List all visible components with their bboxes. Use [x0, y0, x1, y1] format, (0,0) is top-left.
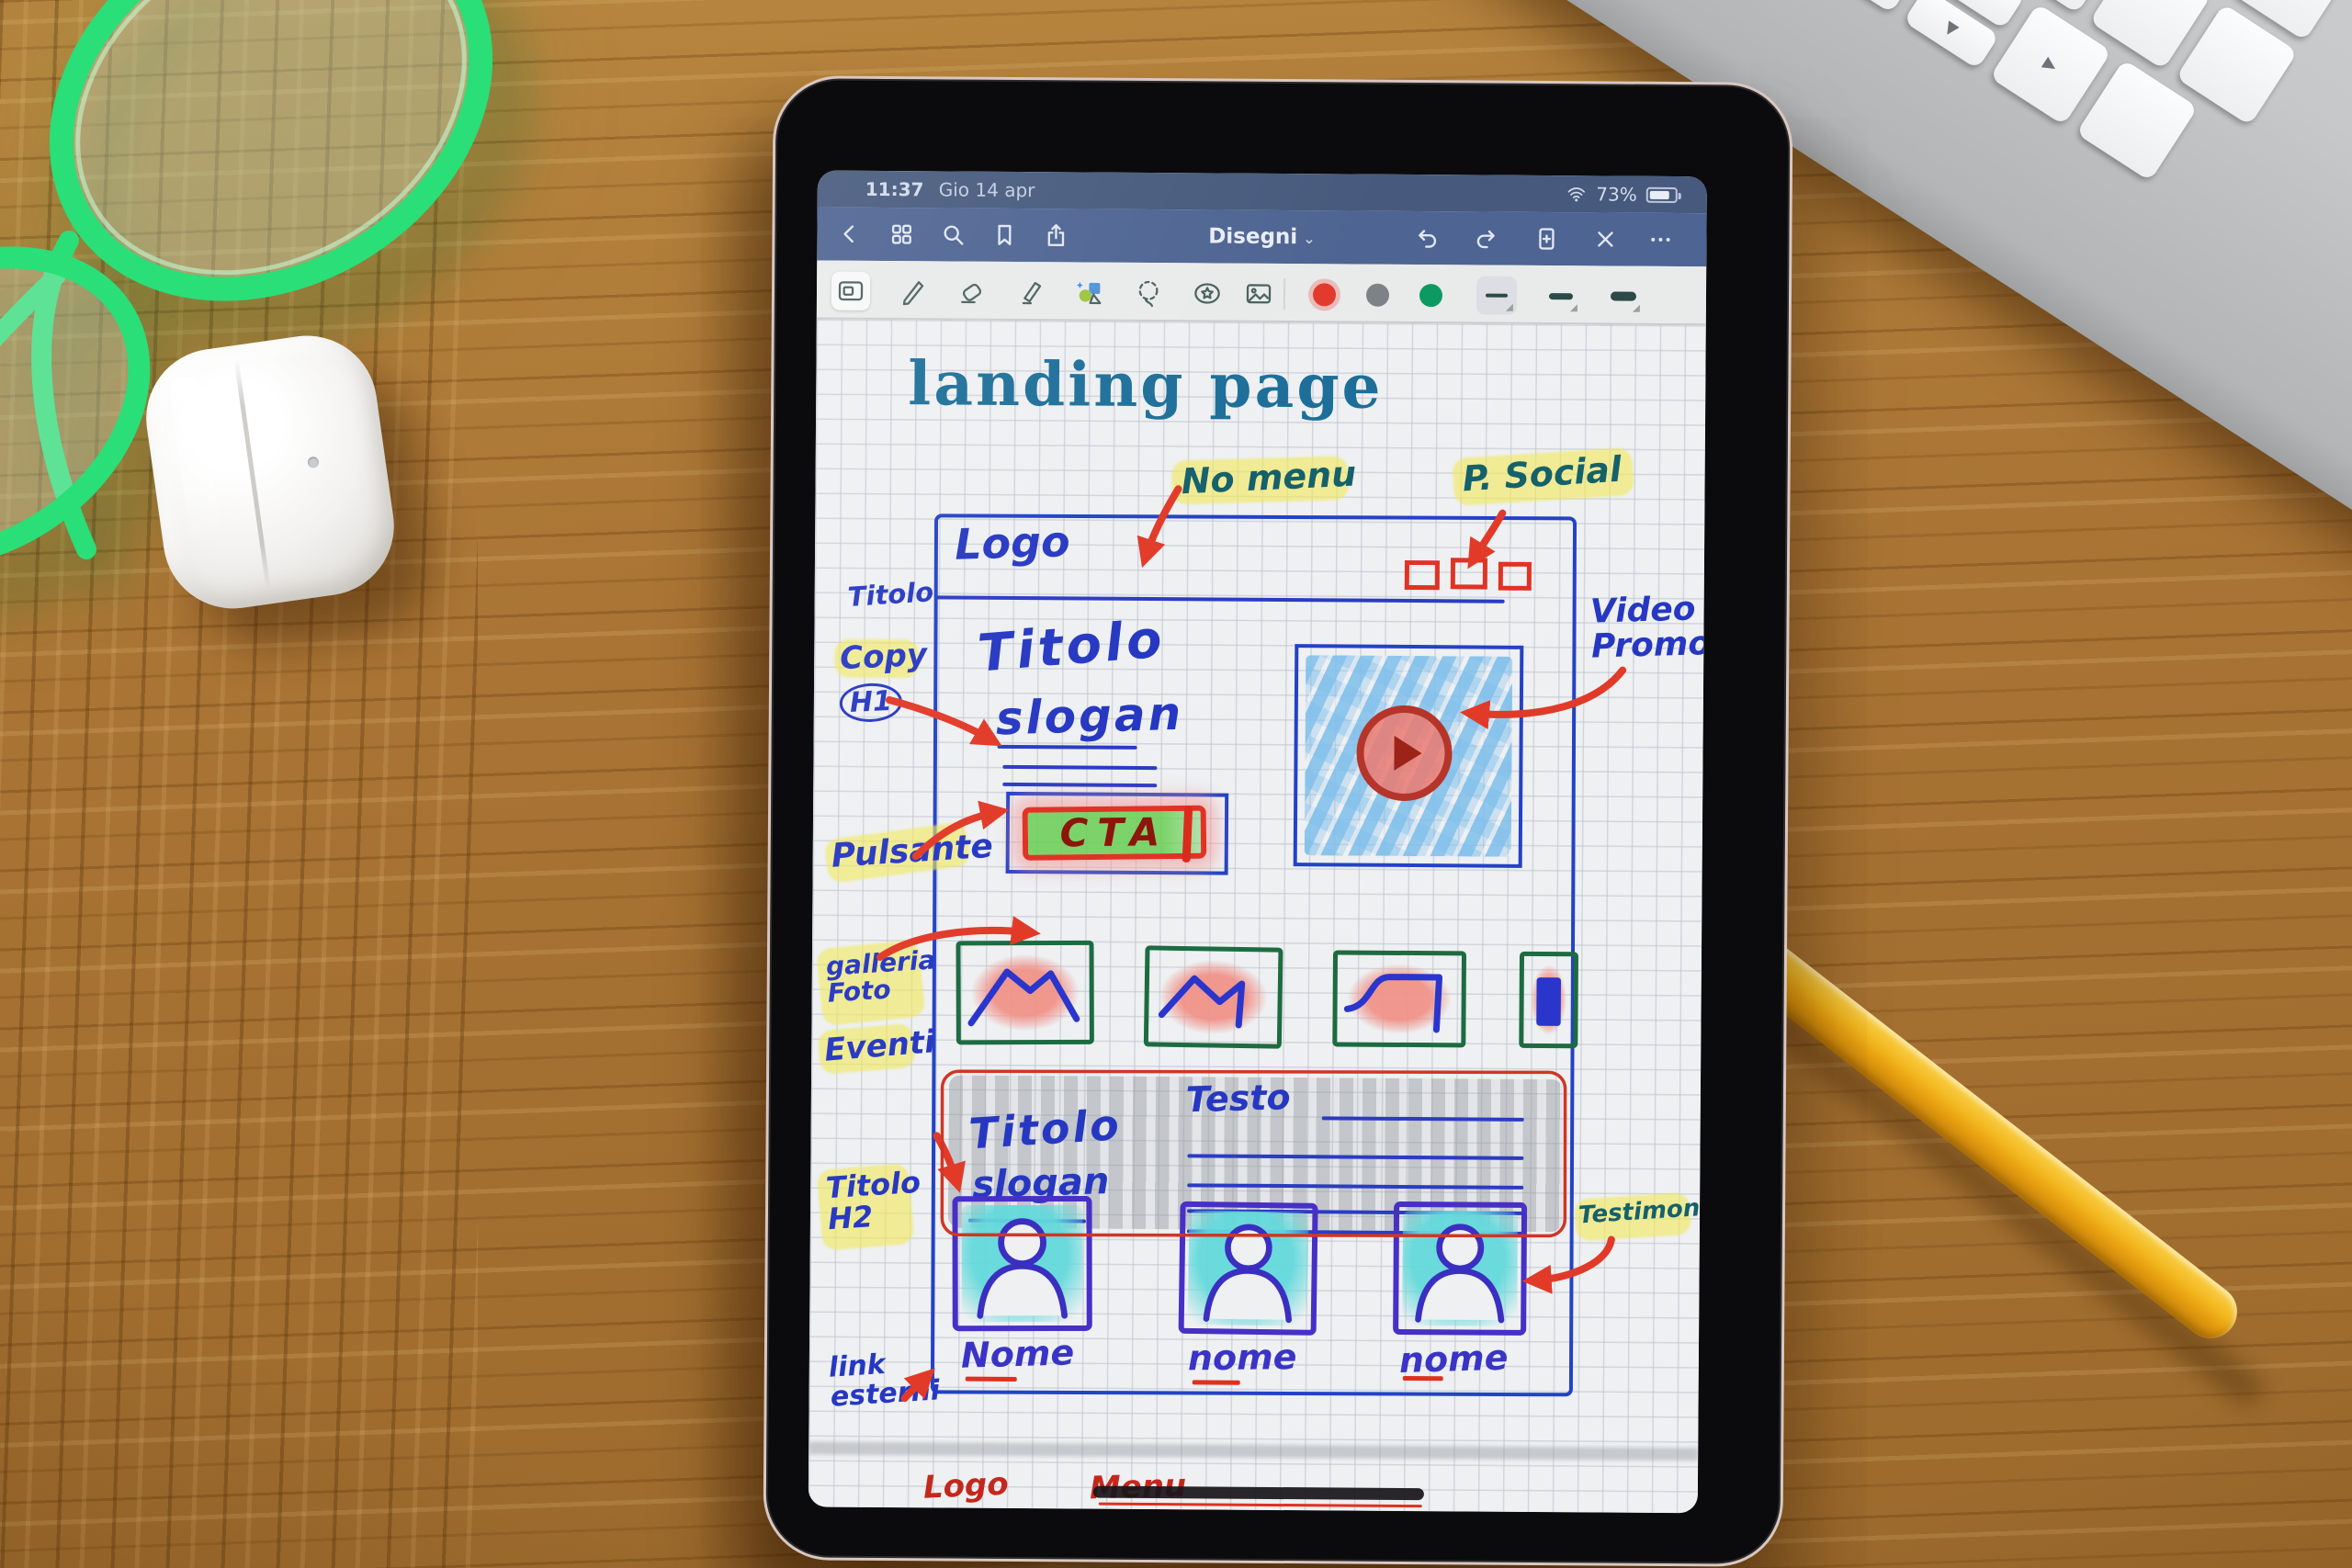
person-silhouette-icon [958, 1201, 1087, 1325]
gallery-box-1 [955, 941, 1093, 1045]
stroke-width-thin-selected[interactable] [1476, 276, 1517, 314]
social-square-3 [1498, 562, 1532, 591]
home-indicator[interactable] [1093, 1486, 1424, 1501]
zoom-window-tool[interactable] [831, 272, 870, 310]
drawing-toolbar [817, 260, 1706, 325]
image-tool[interactable] [1239, 275, 1278, 313]
battery-icon [1646, 186, 1678, 202]
add-page-icon[interactable] [1532, 224, 1561, 254]
document-title-text: Disegni [1208, 224, 1297, 249]
color-swatch-red-selected[interactable] [1313, 283, 1336, 306]
nome-underline-1 [966, 1377, 1017, 1382]
annotation-eventi: Eventi [823, 1026, 936, 1067]
gallery-box-4 [1519, 952, 1578, 1048]
annotation-titolo-side: Titolo [847, 578, 934, 611]
play-button-sketch [1356, 705, 1453, 802]
navigation-bar: Disegni⌄ [817, 207, 1706, 266]
mid-title: Titolo [967, 1102, 1123, 1156]
testimonial-card-1 [953, 1196, 1092, 1331]
annotation-titolo-h2-line1: Titolo [825, 1168, 922, 1204]
wireframe-logo: Logo [954, 519, 1070, 567]
mountain-sketch-icon [1148, 950, 1279, 1043]
eraser-tool[interactable] [953, 273, 991, 311]
nome-label-1: Nome [960, 1335, 1074, 1374]
airpods-highlight [168, 375, 222, 543]
arrow-down-glyph: ▼ [1940, 17, 1962, 39]
cta-label: CTA [1059, 812, 1169, 853]
tablet-screen: 11:37 Gio 14 apr 73% [808, 170, 1707, 1513]
annotation-link-line2: esterni [830, 1376, 941, 1412]
hero-subtitle: slogan [995, 690, 1184, 743]
highlighter-tool[interactable] [1012, 273, 1050, 311]
gallery-box-2 [1144, 945, 1283, 1048]
annotation-h1-circled: H1 [839, 682, 903, 723]
wifi-icon [1565, 185, 1587, 203]
annotation-copy: Copy [839, 639, 927, 676]
flag-sketch-icon [1337, 954, 1462, 1043]
footer-menu-underline [1099, 1503, 1422, 1507]
color-swatch-gray[interactable] [1366, 284, 1389, 307]
pen-tool[interactable] [894, 272, 933, 310]
person-silhouette-icon [1184, 1207, 1313, 1330]
lasso-tool[interactable] [1129, 274, 1168, 312]
mountain-sketch-icon [961, 945, 1090, 1040]
testimonial-card-3 [1393, 1201, 1527, 1336]
sketch-title: landing page [908, 347, 1384, 423]
gallery-box-3 [1332, 950, 1466, 1047]
annotation-no-menu: No menu [1181, 457, 1357, 501]
redo-icon[interactable] [1471, 223, 1500, 253]
toolbar-separator [1283, 278, 1285, 310]
annotation-link-esterni: link esterni [828, 1347, 941, 1411]
annotation-titolo-h2-line2: H2 [827, 1198, 923, 1235]
airpods-led [307, 457, 320, 469]
person-silhouette-icon [1398, 1207, 1521, 1330]
tablet: 11:37 Gio 14 apr 73% [763, 75, 1792, 1567]
cta-button-sketch: CTA [1023, 806, 1207, 861]
nome-label-2: nome [1188, 1339, 1297, 1377]
chevron-down-icon: ⌄ [1303, 230, 1316, 247]
social-square-1 [1405, 560, 1440, 590]
social-square-2 [1451, 558, 1487, 589]
airpods-seam [234, 360, 271, 590]
color-swatch-green[interactable] [1419, 284, 1442, 307]
play-triangle [1394, 736, 1421, 771]
close-icon[interactable] [1590, 224, 1620, 254]
status-bar: 11:37 Gio 14 apr 73% [818, 170, 1707, 213]
cta-red-stroke [1182, 806, 1193, 863]
undo-icon[interactable] [1412, 223, 1442, 253]
stroke-width-medium[interactable] [1541, 276, 1581, 315]
annotation-video-promo: Video Promo [1589, 592, 1705, 664]
footer-logo: Logo [922, 1469, 1009, 1506]
testo-label: Testo [1185, 1079, 1291, 1119]
clock: 11:37 [865, 178, 924, 200]
annotation-galleria: galleria Foto [825, 946, 938, 1007]
notes-canvas[interactable]: landing page No menu P. Social Logo Tito… [808, 319, 1706, 1513]
annotation-titolo-h2: Titolo H2 [825, 1168, 923, 1235]
annotation-video-line2: Promo [1591, 626, 1706, 664]
battery-percent: 73% [1596, 183, 1637, 205]
arrow-right-glyph: ▶ [2040, 52, 2061, 75]
more-icon[interactable] [1645, 225, 1675, 254]
page-bottom-divider [808, 1441, 1698, 1461]
stroke-width-thick[interactable] [1603, 276, 1644, 315]
stickers-tool[interactable] [1188, 274, 1227, 312]
bar-sketch-icon [1523, 956, 1574, 1043]
testimonial-card-2 [1179, 1201, 1318, 1336]
nome-underline-3 [1403, 1376, 1443, 1381]
shapes-tool[interactable] [1070, 273, 1109, 311]
airpods-case [137, 327, 402, 617]
video-promo-box [1294, 644, 1524, 868]
annotation-video-line1: Video [1589, 592, 1705, 629]
desk-scene: ^ control ◀ ▲ ▼ ▶ [0, 0, 2352, 1568]
nome-underline-2 [1193, 1380, 1240, 1384]
nome-label-3: nome [1398, 1340, 1509, 1380]
date: Gio 14 apr [939, 178, 1035, 201]
